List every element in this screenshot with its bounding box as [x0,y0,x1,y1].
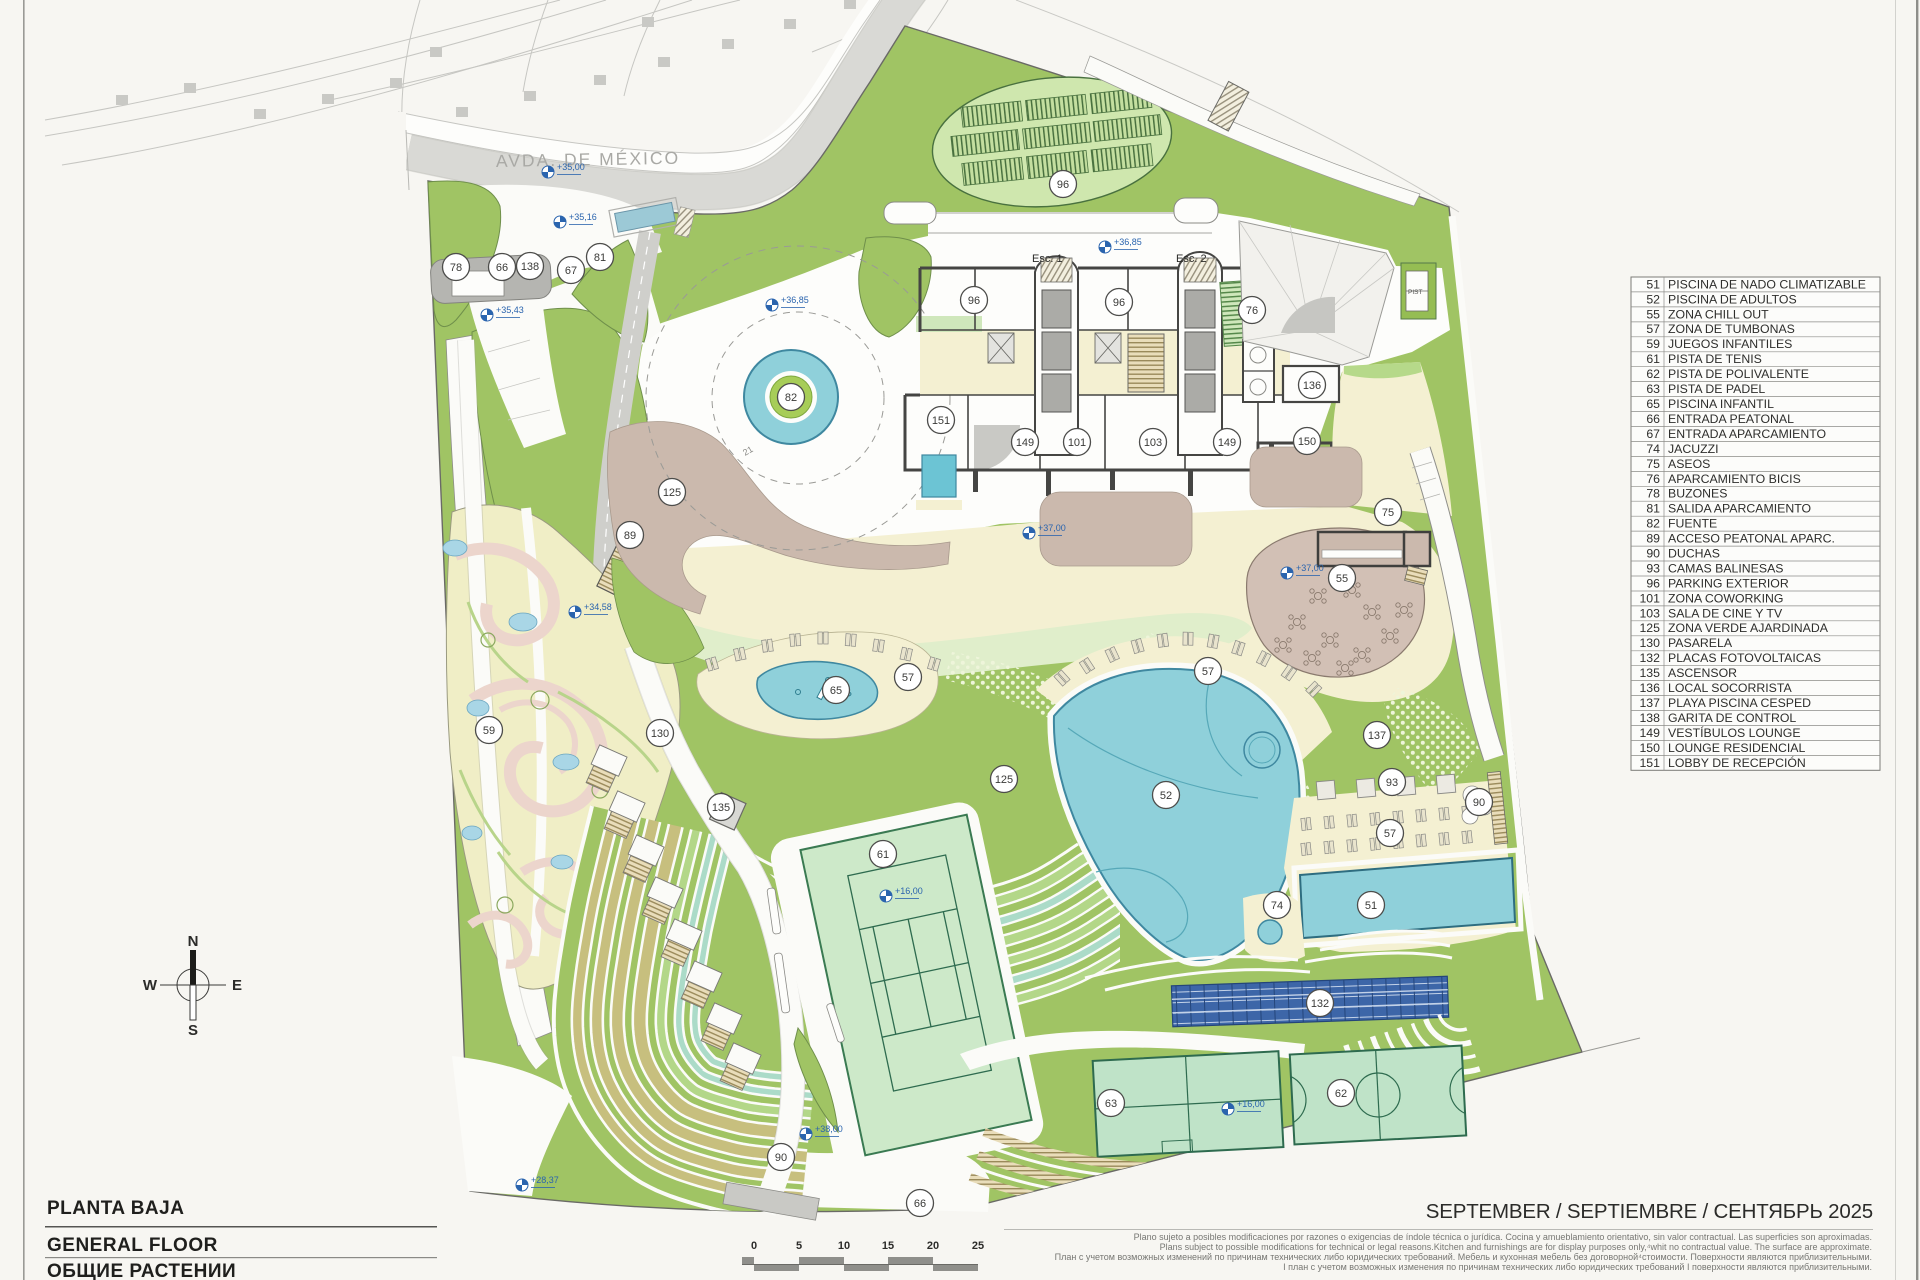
svg-text:VESTÍBULOS LOUNGE: VESTÍBULOS LOUNGE [1668,725,1801,740]
svg-text:S: S [188,1022,198,1039]
svg-text:137: 137 [1639,696,1660,710]
svg-text:PISCINA DE NADO CLIMATIZABLE: PISCINA DE NADO CLIMATIZABLE [1668,277,1866,291]
svg-text:57: 57 [1202,666,1214,678]
svg-text:132: 132 [1639,651,1660,665]
svg-text:66: 66 [496,262,508,274]
svg-text:55: 55 [1646,307,1660,321]
svg-text:96: 96 [1057,179,1069,191]
svg-text:61: 61 [1646,352,1660,366]
svg-text:52: 52 [1160,790,1172,802]
svg-text:PARKING EXTERIOR: PARKING EXTERIOR [1668,576,1789,590]
svg-text:BUZONES: BUZONES [1668,487,1727,501]
svg-text:151: 151 [1639,756,1660,770]
svg-text:125: 125 [995,774,1013,786]
svg-text:75: 75 [1382,507,1394,519]
svg-text:SALA DE CINE Y TV: SALA DE CINE Y TV [1668,606,1783,620]
svg-text:LOBBY DE RECEPCIÓN: LOBBY DE RECEPCIÓN [1668,755,1806,770]
svg-text:78: 78 [450,262,462,274]
svg-text:93: 93 [1646,561,1660,575]
svg-text:PIST: PIST [1408,289,1422,296]
svg-text:149: 149 [1218,437,1236,449]
svg-text:+37,00: +37,00 [1296,563,1324,573]
svg-text:96: 96 [1646,576,1660,590]
svg-text:136: 136 [1303,380,1321,392]
svg-text:+36,85: +36,85 [1114,237,1142,247]
svg-text:130: 130 [1639,636,1660,650]
svg-text:150: 150 [1298,436,1316,448]
svg-text:150: 150 [1639,741,1660,755]
svg-text:74: 74 [1646,442,1660,456]
svg-text:20: 20 [927,1240,939,1252]
svg-text:59: 59 [483,725,495,737]
svg-text:SEPTEMBER / SEPTIEMBRE / СЕНТЯ: SEPTEMBER / SEPTIEMBRE / СЕНТЯБРЬ 2025 [1426,1200,1873,1223]
svg-text:Plano sujeto a posibles modifi: Plano sujeto a posibles modificaciones p… [1134,1232,1872,1242]
svg-text:96: 96 [1113,297,1125,309]
svg-text:Plans subject to possible modi: Plans subject to possible modifications … [1160,1242,1872,1252]
svg-text:59: 59 [1646,337,1660,351]
svg-text:PASARELA: PASARELA [1668,636,1733,650]
svg-text:ASCENSOR: ASCENSOR [1668,666,1737,680]
svg-text:GENERAL FLOOR: GENERAL FLOOR [47,1235,218,1256]
svg-text:125: 125 [663,487,681,499]
svg-text:136: 136 [1639,681,1660,695]
svg-text:DUCHAS: DUCHAS [1668,547,1720,561]
svg-text:67: 67 [1646,427,1660,441]
svg-text:138: 138 [521,261,539,273]
svg-text:E: E [232,977,242,994]
svg-text:151: 151 [932,415,950,427]
svg-text:0: 0 [751,1240,757,1252]
svg-text:78: 78 [1646,487,1660,501]
svg-text:LOUNGE RESIDENCIAL: LOUNGE RESIDENCIAL [1668,741,1806,755]
svg-text:96: 96 [968,295,980,307]
svg-text:+35,16: +35,16 [569,212,597,222]
svg-text:+38,00: +38,00 [815,1124,843,1134]
svg-text:PISTA DE POLIVALENTE: PISTA DE POLIVALENTE [1668,367,1809,381]
svg-text:LOCAL SOCORRISTA: LOCAL SOCORRISTA [1668,681,1792,695]
svg-text:PLANTA BAJA: PLANTA BAJA [47,1198,184,1219]
svg-text:ZONA VERDE AJARDINADA: ZONA VERDE AJARDINADA [1668,621,1829,635]
svg-text:101: 101 [1068,437,1086,449]
svg-text:APARCAMIENTO BICIS: APARCAMIENTO BICIS [1668,472,1801,486]
svg-text:PISCINA DE ADULTOS: PISCINA DE ADULTOS [1668,292,1797,306]
svg-text:+35,00: +35,00 [557,162,585,172]
svg-text:52: 52 [1646,292,1660,306]
svg-text:90: 90 [775,1152,787,1164]
svg-text:125: 125 [1639,621,1660,635]
svg-text:89: 89 [1646,532,1660,546]
svg-text:+36,85: +36,85 [781,295,809,305]
svg-text:GARITA DE CONTROL: GARITA DE CONTROL [1668,711,1796,725]
svg-text:75: 75 [1646,457,1660,471]
svg-text:+16,00: +16,00 [1237,1099,1265,1109]
svg-text:ASEOS: ASEOS [1668,457,1710,471]
svg-text:+34,58: +34,58 [584,602,612,612]
svg-text:План с учетом возможных измене: План с учетом возможных изменений по при… [1055,1252,1872,1262]
svg-text:Esc. 1: Esc. 1 [1032,253,1063,265]
svg-text:PISTA DE TENIS: PISTA DE TENIS [1668,352,1762,366]
svg-text:90: 90 [1473,797,1485,809]
svg-text:ENTRADA PEATONAL: ENTRADA PEATONAL [1668,412,1794,426]
svg-text:51: 51 [1365,900,1377,912]
svg-text:N: N [188,933,199,950]
svg-text:101: 101 [1639,591,1660,605]
svg-text:130: 130 [651,728,669,740]
svg-text:51: 51 [1646,277,1660,291]
svg-text:103: 103 [1639,606,1660,620]
svg-text:57: 57 [902,672,914,684]
svg-text:5: 5 [796,1240,802,1252]
svg-text:135: 135 [1639,666,1660,680]
svg-text:15: 15 [882,1240,894,1252]
svg-text:JUEGOS INFANTILES: JUEGOS INFANTILES [1668,337,1792,351]
svg-text:FUENTE: FUENTE [1668,517,1717,531]
svg-text:ОБЩИЕ РАСТЕНИИ: ОБЩИЕ РАСТЕНИИ [47,1261,236,1280]
svg-text:66: 66 [1646,412,1660,426]
svg-text:135: 135 [712,802,730,814]
svg-text:I план с учетом возможных изме: I план с учетом возможных изменения по п… [1283,1262,1872,1272]
svg-text:62: 62 [1646,367,1660,381]
svg-text:ACCESO PEATONAL APARC.: ACCESO PEATONAL APARC. [1668,532,1835,546]
svg-text:W: W [143,977,158,994]
svg-text:90: 90 [1646,547,1660,561]
svg-text:63: 63 [1105,1098,1117,1110]
svg-text:ZONA COWORKING: ZONA COWORKING [1668,591,1783,605]
svg-text:89: 89 [624,530,636,542]
svg-text:81: 81 [594,252,606,264]
svg-text:66: 66 [914,1198,926,1210]
svg-text:74: 74 [1271,900,1283,912]
svg-text:ZONA CHILL OUT: ZONA CHILL OUT [1668,307,1769,321]
svg-text:PLAYA PISCINA CESPED: PLAYA PISCINA CESPED [1668,696,1811,710]
svg-text:76: 76 [1246,305,1258,317]
svg-text:PLACAS FOTOVOLTAICAS: PLACAS FOTOVOLTAICAS [1668,651,1821,665]
svg-text:55: 55 [1336,573,1348,585]
svg-text:103: 103 [1144,437,1162,449]
svg-text:76: 76 [1646,472,1660,486]
svg-text:57: 57 [1646,322,1660,336]
svg-text:AVDA. DE MÉXICO: AVDA. DE MÉXICO [496,148,681,171]
svg-text:62: 62 [1335,1088,1347,1100]
svg-text:57: 57 [1384,828,1396,840]
svg-text:132: 132 [1311,998,1329,1010]
svg-text:149: 149 [1016,437,1034,449]
svg-text:82: 82 [1646,517,1660,531]
svg-text:JACUZZI: JACUZZI [1668,442,1719,456]
svg-text:137: 137 [1368,730,1386,742]
svg-text:63: 63 [1646,382,1660,396]
svg-text:+16,00: +16,00 [895,886,923,896]
svg-text:10: 10 [838,1240,850,1252]
svg-text:81: 81 [1646,502,1660,516]
svg-text:61: 61 [877,849,889,861]
svg-text:93: 93 [1386,777,1398,789]
svg-text:SALIDA APARCAMIENTO: SALIDA APARCAMIENTO [1668,502,1811,516]
svg-text:25: 25 [972,1240,984,1252]
svg-text:CAMAS BALINESAS: CAMAS BALINESAS [1668,561,1784,575]
svg-text:67: 67 [565,265,577,277]
svg-text:Esc. 2: Esc. 2 [1176,253,1207,265]
svg-text:149: 149 [1639,726,1660,740]
svg-text:ENTRADA APARCAMIENTO: ENTRADA APARCAMIENTO [1668,427,1826,441]
svg-text:PISTA DE PADEL: PISTA DE PADEL [1668,382,1765,396]
svg-text:+28,37: +28,37 [531,1175,559,1185]
svg-text:+37,00: +37,00 [1038,523,1066,533]
svg-text:65: 65 [830,685,842,697]
svg-text:PISCINA INFANTIL: PISCINA INFANTIL [1668,397,1774,411]
svg-text:138: 138 [1639,711,1660,725]
svg-text:65: 65 [1646,397,1660,411]
svg-text:82: 82 [785,392,797,404]
svg-text:ZONA DE TUMBONAS: ZONA DE TUMBONAS [1668,322,1795,336]
svg-text:+35,43: +35,43 [496,305,524,315]
